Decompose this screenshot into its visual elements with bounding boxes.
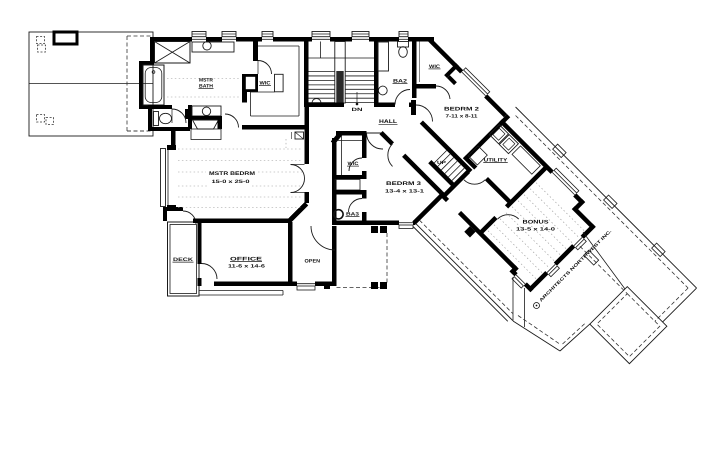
svg-text:MSTR BEDRM: MSTR BEDRM	[209, 171, 255, 177]
svg-text:BEDRM 2: BEDRM 2	[444, 107, 479, 113]
svg-text:BEDRM 3: BEDRM 3	[386, 181, 421, 187]
svg-text:7-11 x 8-11: 7-11 x 8-11	[446, 114, 478, 120]
svg-text:15-0 x 25-0: 15-0 x 25-0	[212, 179, 250, 185]
svg-text:UP: UP	[437, 160, 446, 165]
svg-text:11-6 x 14-6: 11-6 x 14-6	[228, 264, 265, 270]
svg-text:13-4 x 13-1: 13-4 x 13-1	[385, 188, 425, 194]
svg-text:DN: DN	[352, 107, 364, 113]
svg-text:OPEN: OPEN	[305, 258, 321, 264]
svg-text:BONUS: BONUS	[523, 219, 550, 225]
svg-text:13-5 x 14-0: 13-5 x 14-0	[516, 227, 556, 233]
